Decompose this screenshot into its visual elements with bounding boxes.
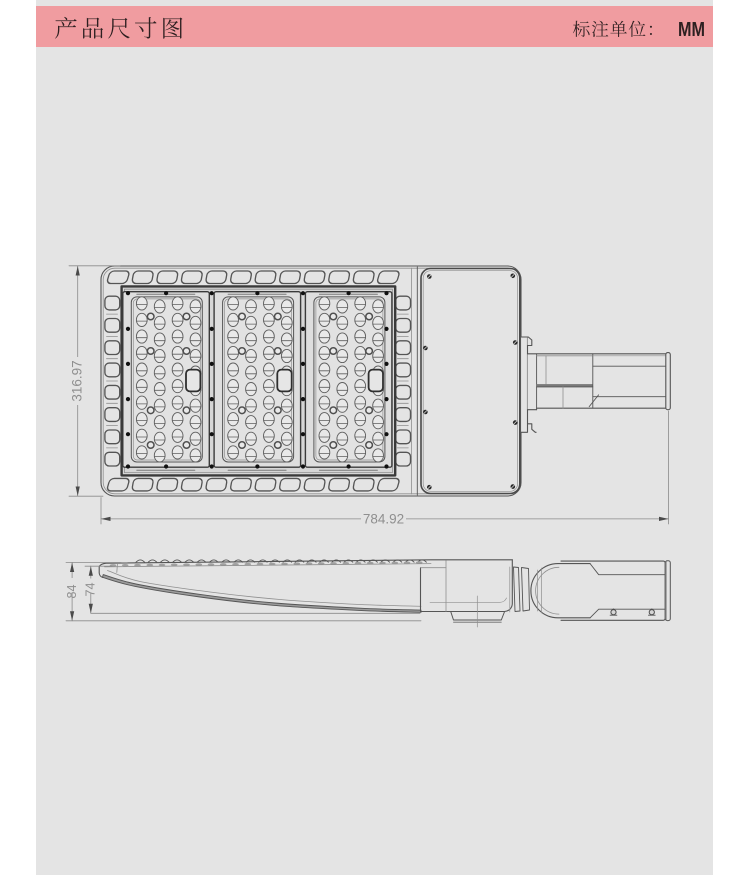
svg-text:MM: MM (678, 18, 705, 41)
svg-text:784.92: 784.92 (363, 511, 404, 526)
svg-text:316.97: 316.97 (70, 360, 85, 401)
svg-text:84: 84 (65, 585, 79, 599)
svg-text:74: 74 (84, 583, 98, 597)
